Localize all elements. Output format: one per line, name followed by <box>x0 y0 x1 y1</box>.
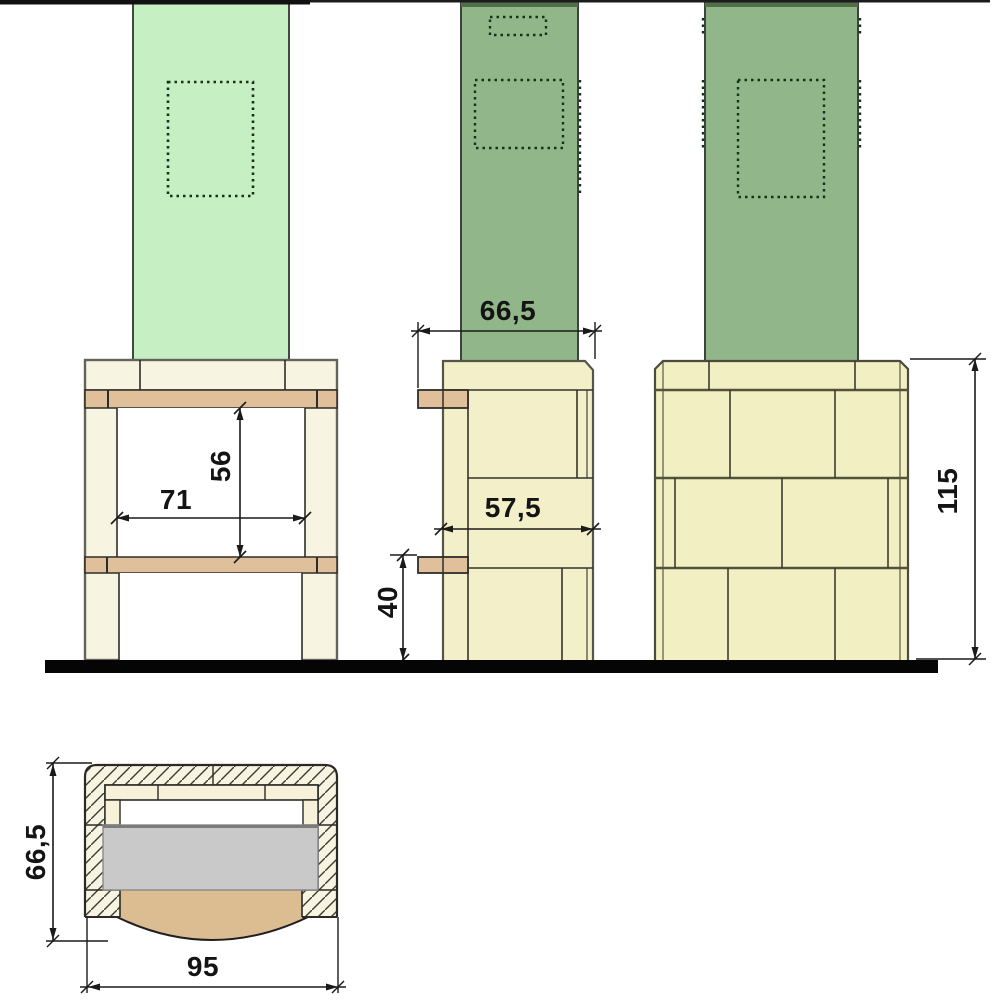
dim-label-opening-height: 56 <box>205 450 237 482</box>
plan-rear-course <box>105 785 318 800</box>
chimney-flue-front <box>133 2 289 360</box>
plan-side-block-left <box>105 800 120 825</box>
dim-label-depth-top: 66,5 <box>480 295 537 327</box>
plan-gray-slab <box>103 825 318 890</box>
dim-label-plan-width: 95 <box>187 951 219 983</box>
dim-label-body-depth: 57,5 <box>485 492 542 524</box>
dim-label-plan-depth: 66,5 <box>20 824 52 881</box>
dim-label-opening-width: 71 <box>160 484 192 516</box>
tan-support-band-lower <box>85 557 337 573</box>
upper-opening-front <box>117 408 305 557</box>
hearth-tan-area <box>110 890 315 940</box>
dim-label-overall-height: 115 <box>932 468 964 515</box>
side-elevation-view <box>390 1 602 666</box>
ground-line <box>45 660 938 673</box>
front-elevation-view <box>85 2 337 660</box>
technical-drawing-canvas: 71 56 66,5 57,5 40 115 66,5 95 <box>0 0 1000 1000</box>
rear-elevation-view <box>655 1 986 665</box>
dim-label-lower-height: 40 <box>372 586 404 618</box>
tan-support-band-upper <box>85 390 337 408</box>
chimney-flue-rear <box>705 1 858 361</box>
plan-side-block-right <box>303 800 318 825</box>
lower-opening-front <box>119 573 302 660</box>
